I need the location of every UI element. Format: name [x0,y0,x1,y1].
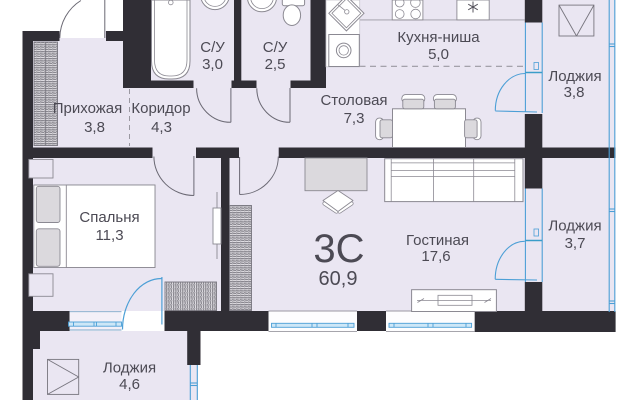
svg-text:Лоджия: Лоджия [548,218,601,235]
svg-text:Лоджия: Лоджия [103,360,156,377]
svg-text:Гостиная: Гостиная [406,232,469,249]
svg-text:2,5: 2,5 [265,56,286,73]
svg-text:4,3: 4,3 [151,119,172,136]
svg-text:60,9: 60,9 [319,268,358,290]
svg-text:Прихожая: Прихожая [53,100,123,117]
svg-text:3С: 3С [313,227,364,271]
svg-text:3,0: 3,0 [202,56,223,73]
svg-text:Кухня-ниша: Кухня-ниша [397,29,480,46]
svg-text:17,6: 17,6 [421,248,450,265]
svg-text:Спальня: Спальня [79,209,139,226]
svg-text:С/У: С/У [200,39,225,56]
svg-text:4,6: 4,6 [119,376,140,393]
svg-text:Лоджия: Лоджия [548,68,601,85]
svg-text:5,0: 5,0 [428,46,449,63]
svg-text:Коридор: Коридор [131,100,190,117]
svg-text:3,8: 3,8 [84,119,105,136]
svg-text:3,8: 3,8 [564,84,585,101]
svg-text:11,3: 11,3 [95,227,123,244]
svg-text:7,3: 7,3 [344,110,365,127]
svg-text:Столовая: Столовая [320,92,387,109]
svg-text:3,7: 3,7 [565,235,586,252]
svg-text:С/У: С/У [263,39,288,56]
